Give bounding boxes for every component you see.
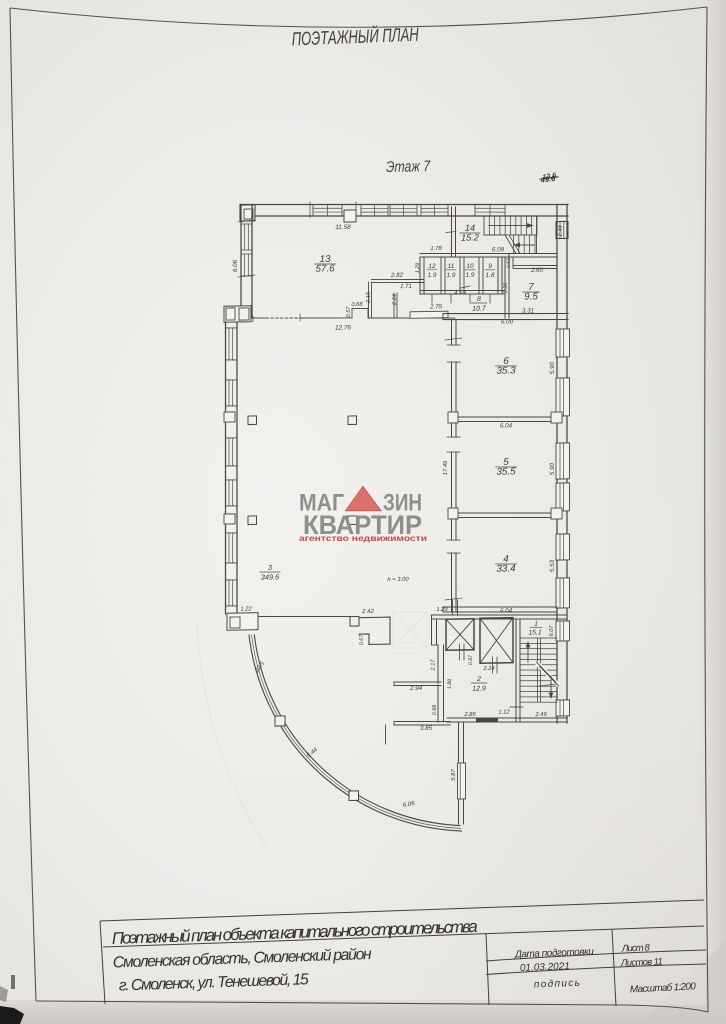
svg-text:1: 1 <box>534 621 538 628</box>
svg-text:1.9: 1.9 <box>466 272 475 279</box>
svg-text:33.4: 33.4 <box>496 563 516 574</box>
svg-text:0.57: 0.57 <box>346 306 352 318</box>
svg-text:0.98: 0.98 <box>432 705 438 716</box>
svg-text:8: 8 <box>477 296 481 303</box>
svg-text:2.49: 2.49 <box>534 712 547 718</box>
svg-text:1.71: 1.71 <box>400 284 412 290</box>
svg-text:2: 2 <box>476 676 481 683</box>
svg-text:15.1: 15.1 <box>528 629 541 636</box>
svg-text:2.49: 2.49 <box>558 226 564 238</box>
svg-text:12: 12 <box>428 263 436 270</box>
svg-text:2.82: 2.82 <box>390 272 404 279</box>
svg-text:h = 3.00: h = 3.00 <box>387 577 409 583</box>
svg-text:17.49: 17.49 <box>443 460 449 475</box>
svg-text:Листов 11: Листов 11 <box>620 956 663 969</box>
svg-text:Этаж 7: Этаж 7 <box>386 158 431 176</box>
svg-text:0.87: 0.87 <box>468 654 474 665</box>
svg-text:подпись: подпись <box>534 978 580 991</box>
svg-text:01.03.2021: 01.03.2021 <box>520 961 570 974</box>
svg-text:35.5: 35.5 <box>496 466 516 477</box>
svg-text:10: 10 <box>466 263 474 270</box>
svg-text:12.76: 12.76 <box>335 324 351 331</box>
svg-text:2.94: 2.94 <box>409 685 423 692</box>
svg-text:1.8: 1.8 <box>486 272 495 279</box>
svg-text:11.58: 11.58 <box>335 224 351 231</box>
svg-text:2.86: 2.86 <box>463 712 476 718</box>
svg-text:9.5: 9.5 <box>524 291 538 302</box>
svg-text:2.60: 2.60 <box>530 267 544 274</box>
svg-text:6.04: 6.04 <box>500 422 513 429</box>
svg-text:349.6: 349.6 <box>261 572 280 581</box>
svg-text:2.24: 2.24 <box>392 294 398 306</box>
svg-text:5.90: 5.90 <box>549 462 556 475</box>
svg-text:1.9: 1.9 <box>428 272 437 279</box>
svg-text:1.12: 1.12 <box>498 709 510 715</box>
svg-text:3.85: 3.85 <box>420 725 433 732</box>
svg-text:3.36: 3.36 <box>503 282 509 294</box>
svg-text:5.87: 5.87 <box>451 769 457 781</box>
svg-text:1.78: 1.78 <box>430 246 442 252</box>
svg-text:5.90: 5.90 <box>549 361 556 374</box>
svg-text:4.53: 4.53 <box>454 290 466 296</box>
svg-text:агентство недвижимости: агентство недвижимости <box>299 534 427 543</box>
svg-text:1.22: 1.22 <box>240 606 252 612</box>
svg-text:57.6: 57.6 <box>315 263 335 274</box>
svg-text:2.17: 2.17 <box>431 659 437 672</box>
svg-text:6.09: 6.09 <box>492 246 505 253</box>
svg-text:11: 11 <box>448 263 455 270</box>
svg-text:6.07: 6.07 <box>549 625 555 637</box>
svg-text:2.24: 2.24 <box>482 666 494 672</box>
svg-text:2.16: 2.16 <box>366 291 372 304</box>
svg-text:15.2: 15.2 <box>461 232 479 242</box>
svg-text:12.9: 12.9 <box>472 685 486 692</box>
svg-text:Лист 8: Лист 8 <box>621 942 651 954</box>
svg-text:2.42: 2.42 <box>361 609 374 615</box>
svg-text:1.9: 1.9 <box>447 272 456 279</box>
svg-text:1.88: 1.88 <box>447 679 453 689</box>
svg-text:9: 9 <box>488 263 492 270</box>
svg-text:0.67: 0.67 <box>359 634 365 646</box>
svg-text:6.06: 6.06 <box>232 259 239 272</box>
svg-text:2.75: 2.75 <box>429 303 443 310</box>
svg-text:0.68: 0.68 <box>351 302 363 308</box>
svg-text:6.04: 6.04 <box>500 607 513 614</box>
svg-text:5.53: 5.53 <box>549 559 556 572</box>
svg-text:10.7: 10.7 <box>472 305 487 312</box>
svg-text:35.3: 35.3 <box>496 365 516 376</box>
svg-text:1.29: 1.29 <box>436 607 448 613</box>
